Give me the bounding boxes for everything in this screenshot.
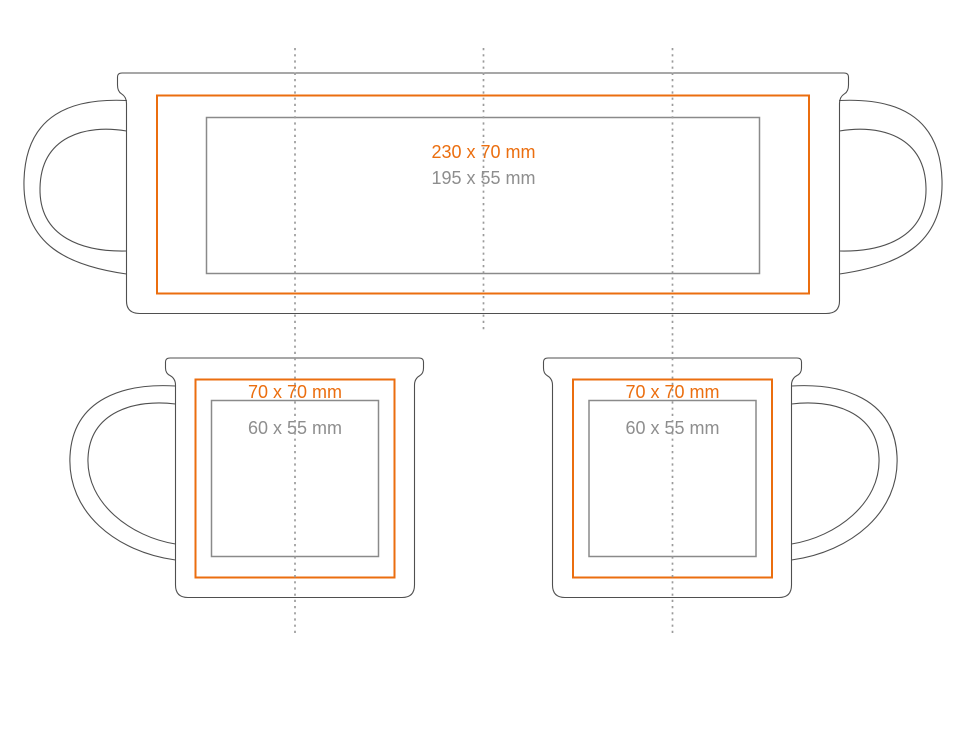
right-mug-print-area-label: 70 x 70 mm [625, 382, 719, 402]
right-mug-handle-outer-curve [792, 386, 898, 560]
wrap-mug-left-handle-outer-curve [24, 100, 127, 274]
mug-print-template-diagram: 230 x 70 mm 195 x 55 mm 70 x 70 mm 60 x … [0, 0, 971, 733]
wrap-mug-safe-area-rect [207, 118, 760, 274]
fold-lines [295, 48, 673, 634]
right-mug-handle-inner-curve [792, 403, 880, 544]
wrap-mug-print-area-rect [157, 96, 809, 294]
wrap-mug-left-handle-inner-curve [40, 129, 127, 251]
left-mug-handle-outer-curve [70, 386, 176, 560]
left-mug-handle-inner-curve [88, 403, 176, 544]
wrap-mug-right-handle-inner-curve [840, 129, 927, 251]
diagram-svg: 230 x 70 mm 195 x 55 mm 70 x 70 mm 60 x … [0, 0, 971, 733]
left-mug: 70 x 70 mm 60 x 55 mm [70, 358, 424, 598]
wrap-mug-right-handle-outer-curve [840, 100, 943, 274]
right-mug: 70 x 70 mm 60 x 55 mm [544, 358, 898, 598]
left-mug-print-area-label: 70 x 70 mm [248, 382, 342, 402]
wrap-mug-print-area-label: 230 x 70 mm [431, 142, 535, 162]
